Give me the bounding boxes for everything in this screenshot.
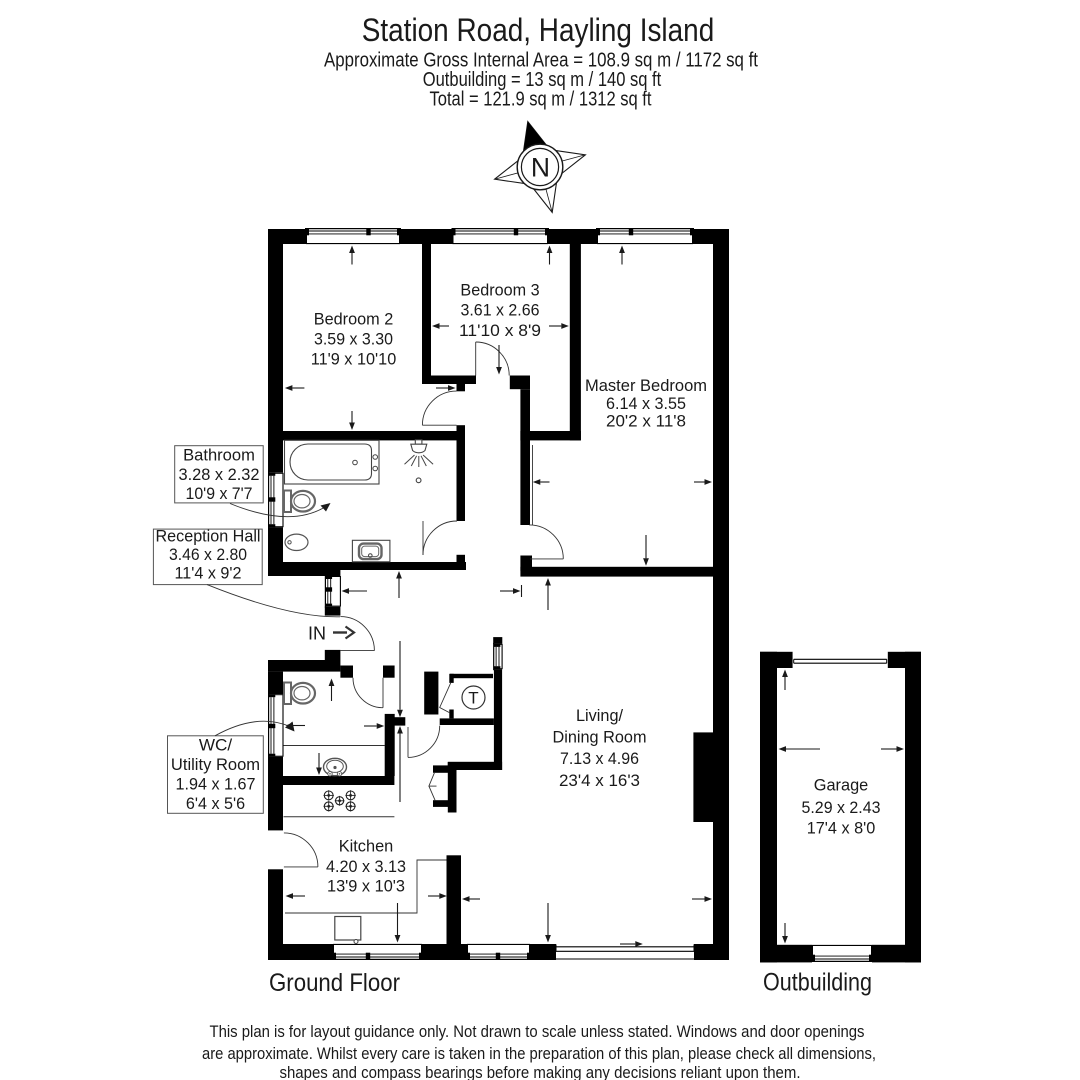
svg-text:20'2 x 11'8: 20'2 x 11'8	[606, 412, 686, 431]
svg-text:13'9 x 10'3: 13'9 x 10'3	[327, 876, 405, 895]
svg-text:Master Bedroom: Master Bedroom	[585, 376, 707, 395]
svg-text:5.29 x 2.43: 5.29 x 2.43	[802, 798, 881, 817]
svg-text:11'4 x 9'2: 11'4 x 9'2	[175, 565, 242, 583]
svg-text:are approximate. Whilst every: are approximate. Whilst every care is ta…	[202, 1044, 876, 1063]
svg-text:3.28 x 2.32: 3.28 x 2.32	[179, 466, 260, 484]
svg-text:N: N	[531, 153, 550, 183]
svg-text:WC/: WC/	[199, 737, 233, 755]
svg-text:Bathroom: Bathroom	[183, 447, 255, 465]
svg-text:17'4 x 8'0: 17'4 x 8'0	[807, 819, 876, 838]
svg-text:3.46 x 2.80: 3.46 x 2.80	[169, 546, 247, 564]
svg-text:7.13 x 4.96: 7.13 x 4.96	[560, 749, 639, 768]
svg-text:10'9 x 7'7: 10'9 x 7'7	[186, 485, 253, 503]
svg-text:T: T	[468, 689, 478, 708]
svg-text:This plan is for layout guidan: This plan is for layout guidance only. N…	[210, 1022, 865, 1041]
svg-text:IN: IN	[308, 624, 326, 644]
svg-text:Ground Floor: Ground Floor	[269, 970, 400, 997]
svg-text:3.61 x 2.66: 3.61 x 2.66	[461, 301, 540, 320]
svg-text:Utility Room: Utility Room	[171, 756, 260, 774]
svg-text:6'4 x 5'6: 6'4 x 5'6	[186, 795, 245, 813]
svg-text:Dining Room: Dining Room	[553, 728, 647, 747]
svg-text:shapes and compass bearings be: shapes and compass bearings before makin…	[280, 1063, 801, 1080]
svg-text:Reception Hall: Reception Hall	[156, 528, 261, 546]
svg-text:Living/: Living/	[576, 706, 623, 725]
svg-text:Total = 121.9 sq m / 1312 sq f: Total = 121.9 sq m / 1312 sq ft	[430, 87, 652, 110]
svg-text:23'4 x 16'3: 23'4 x 16'3	[559, 771, 640, 790]
svg-text:11'10 x 8'9: 11'10 x 8'9	[459, 321, 541, 340]
svg-text:Outbuilding: Outbuilding	[763, 969, 872, 996]
svg-text:Bedroom 2: Bedroom 2	[314, 310, 394, 329]
svg-text:3.59 x 3.30: 3.59 x 3.30	[314, 330, 393, 349]
svg-text:4.20 x 3.13: 4.20 x 3.13	[326, 857, 406, 876]
svg-text:6.14 x 3.55: 6.14 x 3.55	[606, 394, 686, 413]
svg-text:Station Road, Hayling Island: Station Road, Hayling Island	[362, 12, 715, 48]
svg-text:1.94 x 1.67: 1.94 x 1.67	[176, 776, 256, 794]
svg-text:Bedroom 3: Bedroom 3	[460, 281, 539, 300]
svg-text:Kitchen: Kitchen	[339, 837, 394, 856]
svg-text:11'9 x 10'10: 11'9 x 10'10	[311, 350, 397, 369]
svg-text:Garage: Garage	[814, 775, 869, 794]
